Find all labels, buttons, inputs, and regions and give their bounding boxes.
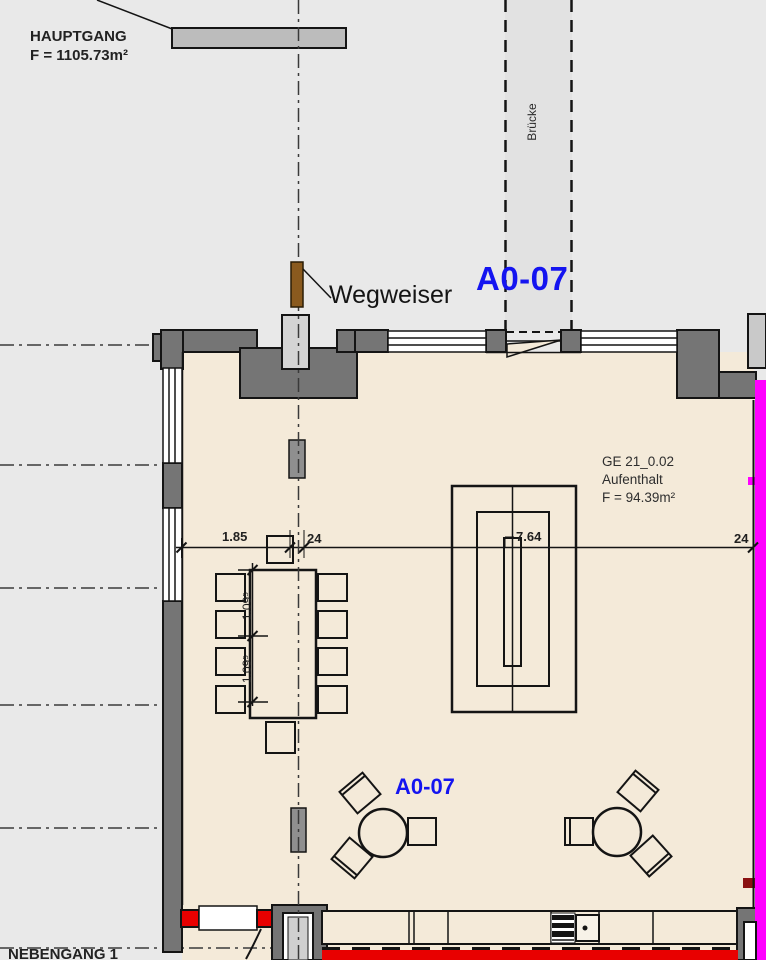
dimension-horizontal [176, 530, 758, 558]
void-outer [452, 486, 576, 712]
chair [408, 818, 436, 845]
wall-door-pillar-right [561, 330, 581, 352]
wall-top-right-corner [677, 330, 719, 398]
conference-area [216, 536, 347, 753]
floor-plan-canvas: HAUPTGANG F = 1105.73m² Brücke Wegweiser… [0, 0, 766, 960]
hauptgang-area: F = 1105.73m² [30, 46, 128, 65]
counter-run [322, 911, 737, 944]
door-swing-wedge [507, 340, 561, 357]
wall-left-pillar [163, 463, 182, 508]
hauptgang-name: HAUPTGANG [30, 27, 128, 46]
dim-label-v1: 1.09⁵ [240, 584, 254, 628]
chair [318, 574, 347, 601]
conference-table [250, 570, 316, 718]
round-table-group-2 [565, 771, 672, 877]
wegweiser-signpost [291, 262, 303, 307]
red-marker-left [181, 910, 199, 927]
hauptgang-label: HAUPTGANG F = 1105.73m² [30, 27, 128, 65]
dim-label-1-85: 1.85 [222, 529, 247, 544]
column-upper [289, 440, 305, 478]
kitchen-counter [322, 911, 737, 944]
dim-label-24-right: 24 [734, 531, 748, 546]
wall-top-right-band [719, 372, 756, 398]
zone-code-top: A0-07 [476, 260, 568, 298]
window-left-2 [163, 508, 182, 601]
bottom-door-area [181, 906, 313, 960]
round-table-1 [359, 809, 407, 857]
door-opening-white [199, 906, 257, 930]
chair-head-bottom [266, 722, 295, 753]
room-area: F = 94.39m² [602, 489, 675, 507]
zone-code-bottom: A0-07 [395, 774, 455, 800]
corner-detail-white [744, 922, 756, 960]
hauptgang-sign-board [172, 28, 346, 48]
dim-label-v2: 1.09⁵ [240, 647, 254, 691]
wall-left-lower [163, 601, 182, 952]
round-table-2 [593, 808, 641, 856]
door-swing-arc [246, 929, 261, 959]
entry-door-leaf [282, 315, 309, 369]
window-top-2 [581, 331, 677, 352]
chair [318, 611, 347, 638]
room-id: GE 21_0.02 [602, 453, 675, 471]
fire-wall-notch [748, 477, 756, 485]
chair [318, 686, 347, 713]
wall-top-mid [355, 330, 388, 352]
room-name: Aufenthalt [602, 471, 675, 489]
window-left-1 [163, 368, 182, 463]
nebengang-label: NEBENGANG 1 [8, 946, 118, 960]
wall-top-left-corner [161, 330, 183, 369]
chair [318, 648, 347, 675]
walls [153, 330, 756, 960]
wegweiser-leader-line [303, 269, 331, 298]
bruecke-label: Brücke [525, 92, 541, 152]
skylight-void [452, 486, 576, 712]
fire-wall-strip [755, 380, 766, 960]
wegweiser-label: Wegweiser [329, 281, 452, 310]
room-label: GE 21_0.02 Aufenthalt F = 94.39m² [602, 453, 675, 507]
chair-rotated [618, 771, 659, 812]
adjacent-structure [748, 314, 766, 368]
red-alert-bar [322, 950, 738, 960]
chair-rotated [340, 773, 381, 814]
red-marker-right [257, 910, 272, 927]
window-top-1 [388, 331, 486, 352]
wall-door-pillar-left [486, 330, 506, 352]
dim-label-24-left: 24 [307, 531, 321, 546]
cooktop-knob [583, 926, 588, 931]
dim-label-7-64: 7.64 [516, 529, 541, 544]
